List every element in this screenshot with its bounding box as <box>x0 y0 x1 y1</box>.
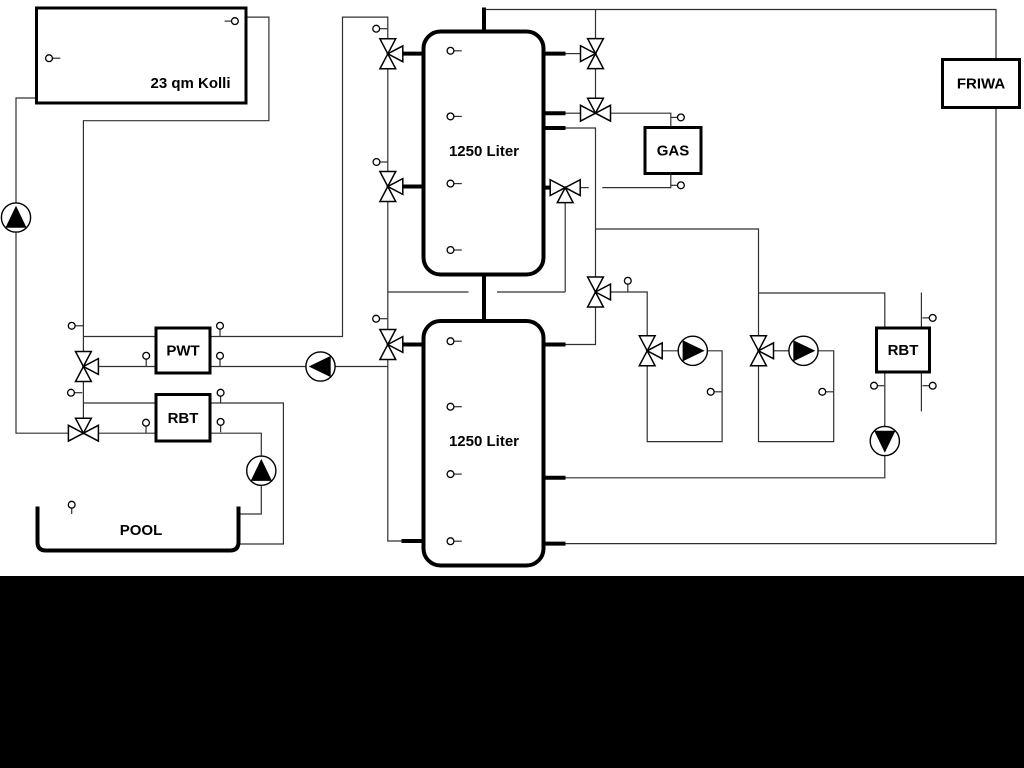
svg-text:POOL: POOL <box>120 522 163 539</box>
svg-text:1250 Liter: 1250 Liter <box>449 143 519 160</box>
svg-text:1250 Liter: 1250 Liter <box>449 433 519 450</box>
svg-text:23 qm Kolli: 23 qm Kolli <box>150 75 230 92</box>
svg-text:RBT: RBT <box>888 342 919 359</box>
svg-text:RBT: RBT <box>168 410 199 427</box>
svg-text:PWT: PWT <box>166 343 199 360</box>
svg-text:FRIWA: FRIWA <box>957 76 1005 93</box>
svg-text:GAS: GAS <box>657 143 690 160</box>
